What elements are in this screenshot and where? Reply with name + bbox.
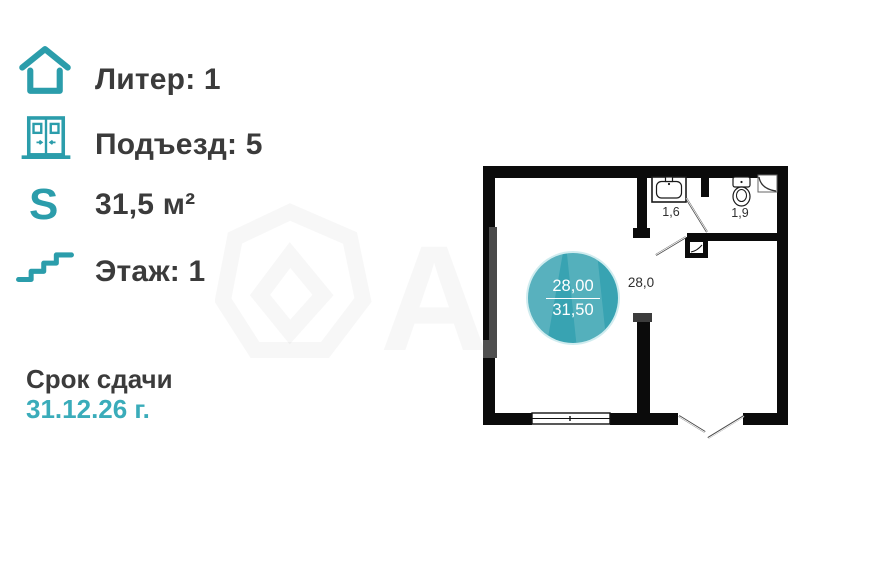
vent-shaft-icon bbox=[690, 242, 703, 253]
wc-area-label: 1,9 bbox=[722, 206, 758, 220]
area-s-icon: S bbox=[29, 183, 58, 227]
deadline-date: 31.12.26 г. bbox=[26, 394, 150, 425]
floor-plan-drawing bbox=[460, 150, 800, 460]
badge-living-area: 28,00 bbox=[552, 277, 593, 295]
window-icon bbox=[532, 413, 610, 424]
house-icon bbox=[17, 43, 73, 97]
deadline-title: Срок сдачи bbox=[26, 364, 173, 395]
doors-icon bbox=[19, 115, 73, 159]
toilet-icon bbox=[733, 177, 750, 206]
area-badge: 28,00 31,50 bbox=[528, 253, 618, 343]
bathroom-area-label: 1,6 bbox=[653, 205, 689, 219]
floor-plan: 1,6 1,9 28,0 28,00 31,50 bbox=[460, 150, 800, 460]
floor-label: Этаж: 1 bbox=[95, 255, 205, 289]
liter-label: Литер: 1 bbox=[95, 63, 221, 97]
main-room-area-label: 28,0 bbox=[619, 275, 663, 290]
stairs-icon bbox=[16, 248, 74, 282]
corner-door-arc-icon bbox=[758, 175, 777, 192]
sink-icon bbox=[652, 177, 686, 202]
entrance-label: Подъезд: 5 bbox=[95, 128, 263, 162]
listing-card: А Литер: 1 Подъезд: 5 S 31,5 м² Этаж: 1 … bbox=[0, 0, 883, 585]
badge-divider bbox=[546, 298, 600, 299]
badge-total-area: 31,50 bbox=[552, 301, 593, 319]
area-label: 31,5 м² bbox=[95, 188, 195, 222]
